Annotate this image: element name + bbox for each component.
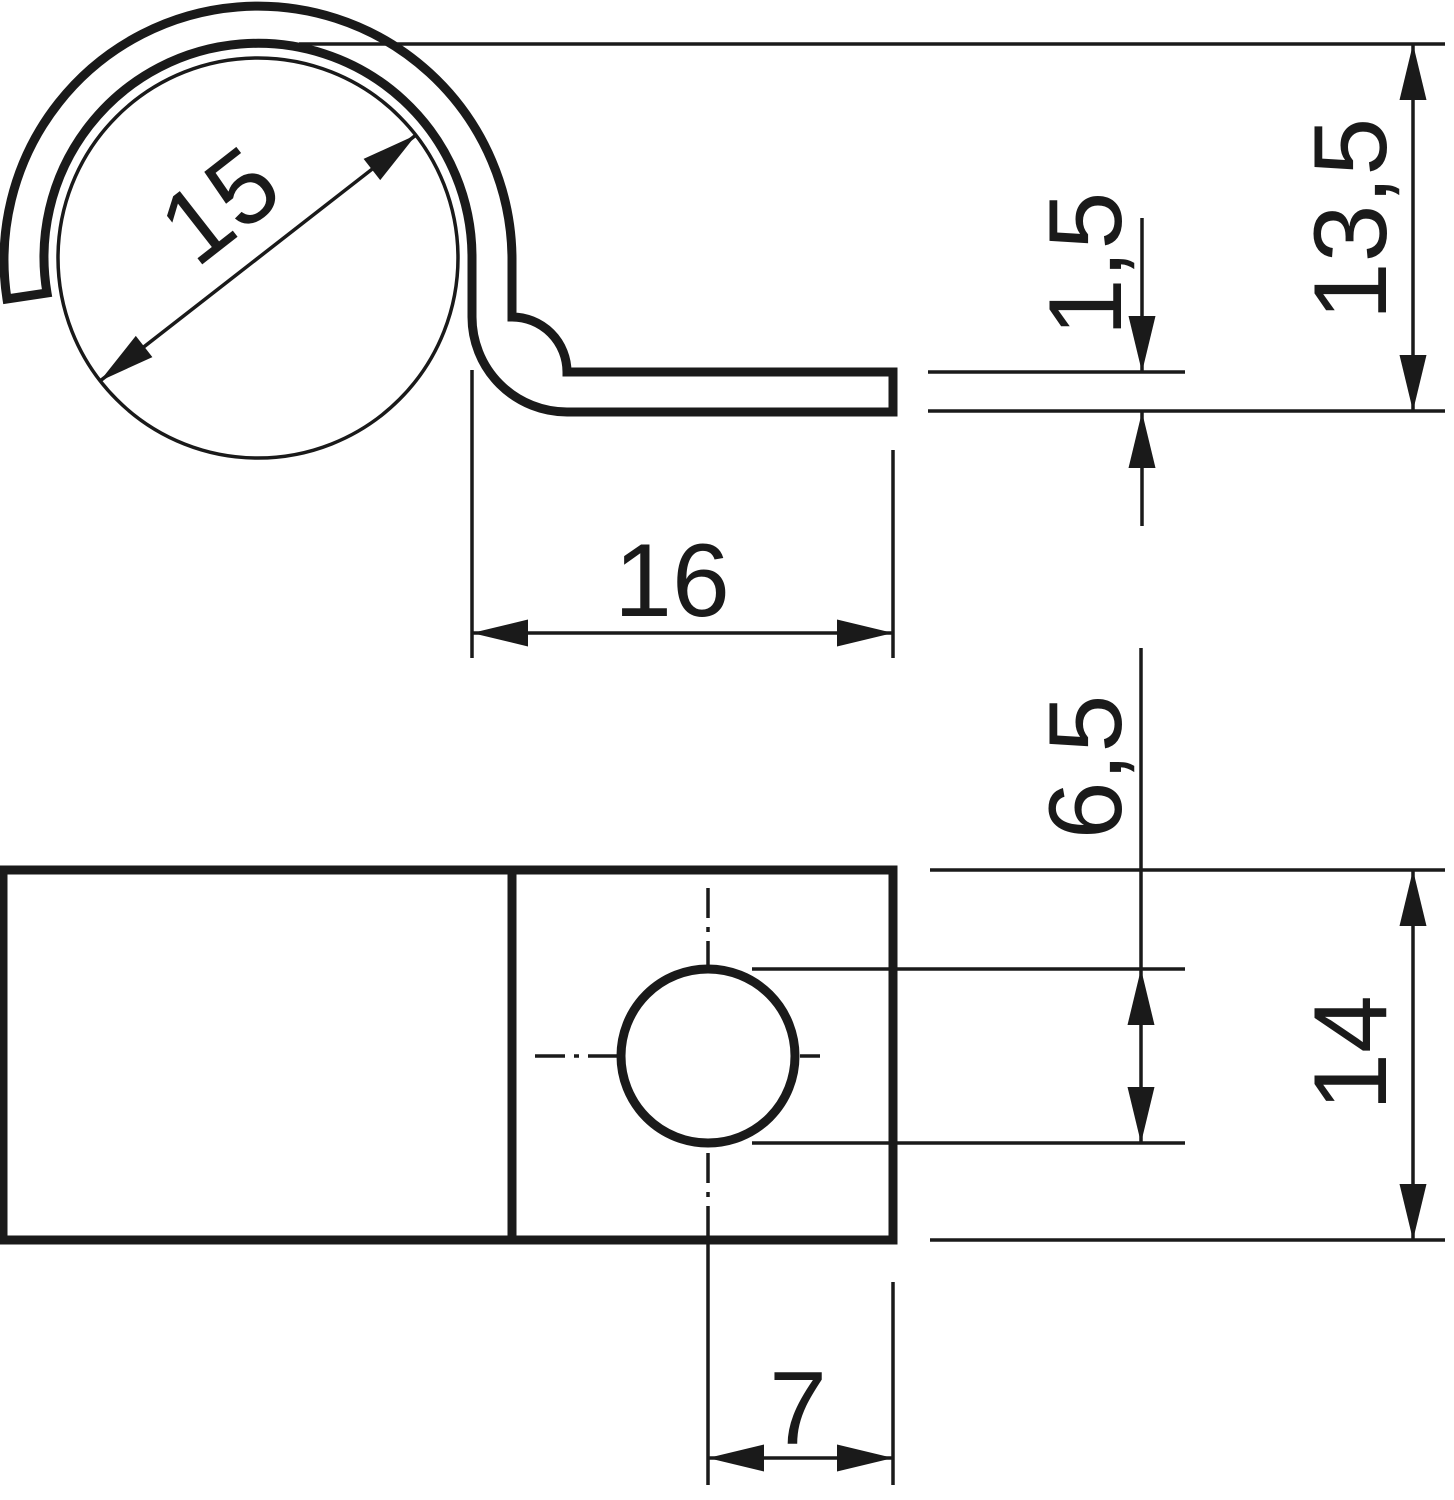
fixing-hole bbox=[621, 969, 795, 1143]
dim-6-5-label: 6,5 bbox=[1028, 695, 1144, 840]
drawing-page: 15 16 1,5 13,5 bbox=[0, 0, 1454, 1500]
dim-14-arrow-bottom bbox=[1400, 1184, 1427, 1240]
dim-16-label: 16 bbox=[614, 523, 730, 639]
dim-7-arrow-right bbox=[837, 1445, 893, 1472]
dim-14-arrow-top bbox=[1400, 870, 1427, 926]
dim-1-5-label: 1,5 bbox=[1028, 192, 1144, 337]
dim-hole-center-to-end: 7 bbox=[708, 1240, 893, 1485]
dim-13-5-label: 13,5 bbox=[1293, 118, 1409, 320]
dim-1-5-arrow-bottom bbox=[1129, 412, 1156, 468]
dim-15-arrow-upper bbox=[364, 135, 416, 180]
dim-inner-diameter: 15 bbox=[100, 125, 416, 381]
plan-view: 6,5 14 7 bbox=[3, 648, 1445, 1485]
dim-hole-diameter: 6,5 bbox=[752, 648, 1185, 1143]
dim-16-arrow-right bbox=[837, 620, 893, 647]
dim-15-label: 15 bbox=[139, 125, 302, 288]
dim-6-5-arrow-bottom bbox=[1128, 1087, 1155, 1143]
dim-6-5-arrow-top bbox=[1128, 969, 1155, 1025]
dim-16-arrow-left bbox=[472, 620, 528, 647]
dim-7-arrow-left bbox=[708, 1445, 764, 1472]
dim-13-5-arrow-top bbox=[1400, 44, 1427, 100]
dim-14-label: 14 bbox=[1293, 995, 1409, 1111]
technical-drawing-canvas: 15 16 1,5 13,5 bbox=[0, 0, 1454, 1500]
dim-7-label: 7 bbox=[769, 1351, 827, 1467]
dim-strap-width: 14 bbox=[930, 870, 1445, 1240]
side-view: 15 16 1,5 13,5 bbox=[4, 6, 1445, 658]
dim-13-5-arrow-bottom bbox=[1400, 355, 1427, 411]
dim-15-arrow-lower bbox=[100, 336, 152, 381]
